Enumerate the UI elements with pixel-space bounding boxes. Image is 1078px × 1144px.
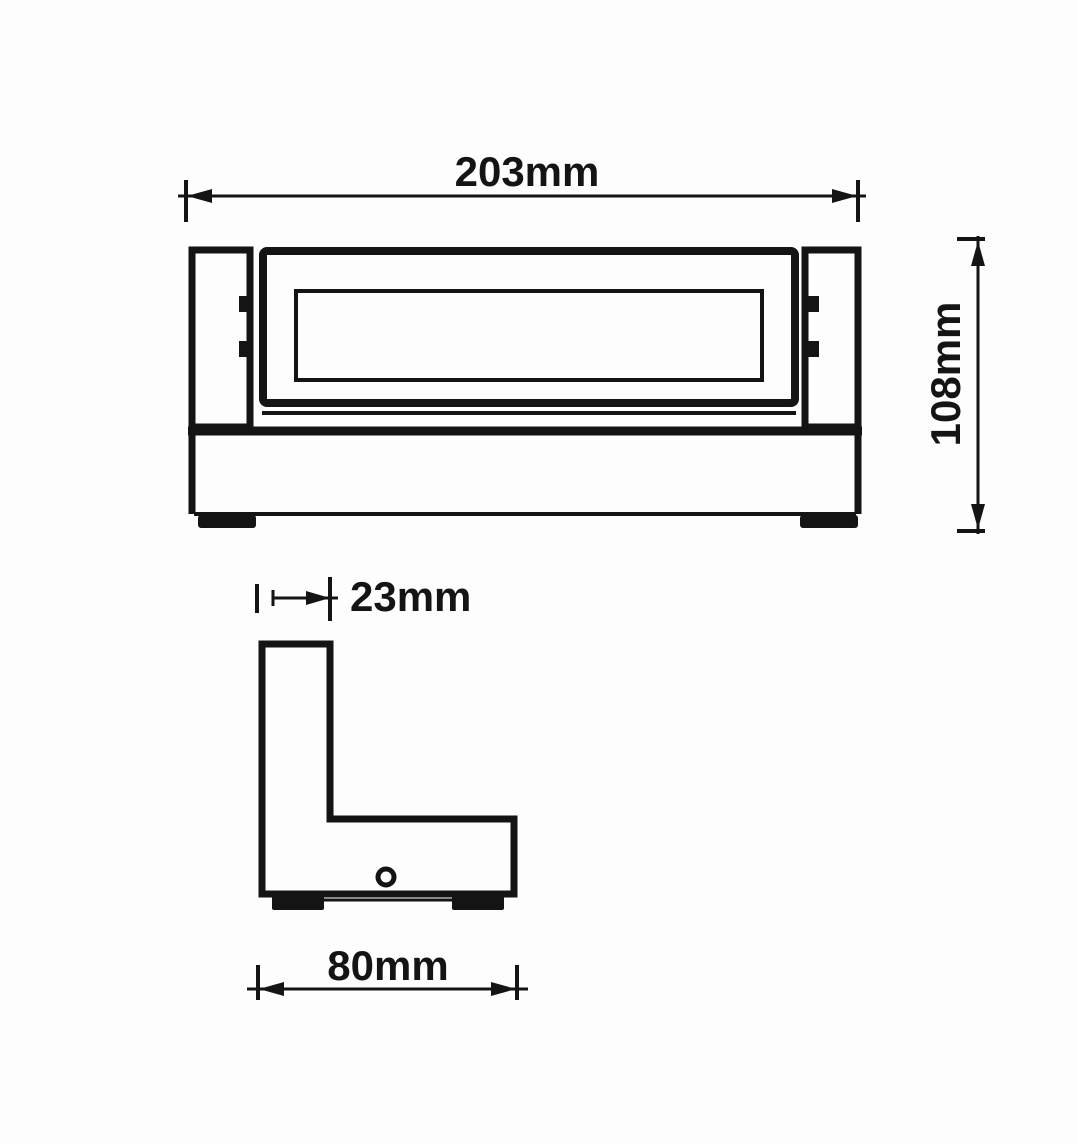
side-left-foot	[272, 896, 324, 910]
side-view	[262, 644, 514, 910]
width-dim-label: 203mm	[455, 148, 600, 195]
depth-arrow-left	[259, 982, 284, 996]
dimension-depth: 80mm	[247, 942, 528, 1000]
dimension-arm: 23mm	[257, 573, 471, 621]
height-arrow-down	[971, 504, 985, 529]
height-arrow-up	[971, 241, 985, 266]
arm-arrow-right	[306, 591, 330, 605]
front-right-post	[805, 250, 858, 427]
technical-drawing-page: 203mm 108mm 23mm	[0, 0, 1078, 1144]
front-left-foot	[198, 515, 256, 528]
front-view	[188, 250, 862, 528]
dimension-height: 108mm	[922, 236, 985, 534]
right-post-clip-top	[806, 296, 819, 312]
height-dim-label: 108mm	[922, 302, 969, 447]
side-mounting-hole	[378, 869, 394, 885]
dimension-drawing-svg: 203mm 108mm 23mm	[0, 0, 1078, 1144]
front-left-post	[192, 250, 250, 427]
width-arrow-left	[187, 189, 212, 203]
depth-arrow-right	[491, 982, 516, 996]
depth-dim-label: 80mm	[327, 942, 448, 989]
dimension-width: 203mm	[178, 148, 866, 222]
side-profile-outline	[262, 644, 514, 894]
front-right-foot	[800, 515, 858, 528]
right-post-clip-bottom	[806, 341, 819, 357]
front-diffuser-window	[296, 291, 762, 380]
arm-dim-label: 23mm	[350, 573, 471, 620]
width-arrow-right	[832, 189, 857, 203]
left-post-clip-bottom	[239, 341, 252, 357]
side-right-foot	[452, 896, 504, 910]
left-post-clip-top	[239, 296, 252, 312]
